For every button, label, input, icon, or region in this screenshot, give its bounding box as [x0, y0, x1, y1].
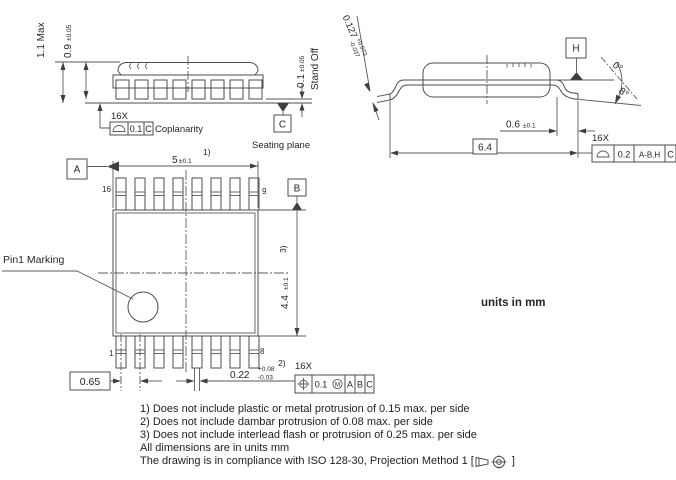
position-tolerance-frame: 0.1 M A B C — [295, 375, 374, 393]
dim-lead-thickness: 0.127 +0.073 -0.037 — [337, 14, 367, 61]
datum-letter: B — [294, 184, 301, 195]
footnotes: 1) Does not include plastic or metal pro… — [140, 403, 560, 469]
arrowhead — [390, 151, 398, 156]
dim-text: 0° — [610, 60, 624, 75]
dim-tol-plus: +0.08 — [258, 366, 275, 373]
pin — [230, 178, 240, 210]
pin — [154, 178, 164, 210]
pin1-marking-circle — [128, 292, 158, 322]
datum-letter: C — [279, 120, 286, 131]
compliance-text: The drawing is in compliance with ISO 12… — [140, 455, 474, 468]
dim-text: 6.4 — [478, 143, 492, 154]
arrowhead — [300, 103, 305, 111]
pin-number-1: 1 — [109, 349, 114, 358]
arrowhead — [61, 62, 66, 70]
lead-count-label: 16X — [295, 361, 313, 372]
dim-text: 0.9 — [63, 44, 74, 58]
dim-text: 0.22 — [230, 370, 250, 381]
bottom-pin-row — [116, 336, 259, 368]
coplanarity-frame: 0.1 C — [110, 122, 153, 135]
seating-plane-label: Seating plane — [252, 140, 310, 151]
pin-number-8: 8 — [260, 347, 265, 356]
pin — [192, 336, 202, 368]
side-view: 1.1 Max 0.9 ±0.05 0.1 ±0.05 Stand Off 16… — [36, 22, 321, 151]
dim-tol-minus: -0.03 — [258, 375, 273, 382]
angle-min-label: 0° — [610, 60, 624, 75]
footnote-units: All dimensions are in units mm — [140, 442, 560, 455]
dim-tol: ±0.05 — [299, 55, 306, 72]
tolerance-value: 0.1 — [130, 124, 143, 134]
lead — [230, 80, 243, 99]
package-drawing-page: 1.1 Max 0.9 ±0.05 0.1 ±0.05 Stand Off 16… — [0, 0, 676, 480]
dim-tol: ±0.1 — [179, 158, 192, 165]
position-tolerance-icon — [298, 378, 310, 390]
arrowhead — [84, 62, 89, 70]
pin — [116, 178, 126, 210]
arrowhead — [549, 129, 557, 134]
datum-triangle — [277, 103, 289, 112]
footnote-compliance: The drawing is in compliance with ISO 12… — [140, 455, 560, 469]
footnote-2: 2) Does not include dambar protrusion of… — [140, 416, 560, 429]
dim-text: 4.4 — [280, 295, 291, 309]
datum-refs: A-B,H — [639, 151, 661, 160]
profile-surface-icon — [597, 151, 609, 157]
lead — [154, 80, 167, 99]
compliance-text-close: ] — [512, 455, 515, 468]
pin-number-9: 9 — [262, 187, 267, 196]
mold-marks — [130, 64, 148, 70]
top-pin-row — [116, 178, 259, 210]
dim-text: 0.65 — [80, 376, 101, 388]
pin — [230, 336, 240, 368]
dim-text: 0.6 — [506, 120, 520, 131]
pin — [249, 336, 259, 368]
tolerance-value: 0.1 — [315, 380, 328, 390]
side-view-leads — [116, 80, 262, 99]
mmc-modifier-icon: M — [333, 379, 342, 388]
dim-text: 5 — [172, 155, 178, 166]
note-ref: 3) — [278, 245, 288, 253]
pin — [211, 336, 221, 368]
datum-ref: C — [145, 124, 152, 134]
dim-tol: ±0.05 — [66, 24, 73, 41]
units-note: units in mm — [481, 297, 546, 309]
extension-line — [377, 100, 390, 103]
datum-letter: A — [74, 165, 81, 176]
tolerance-value: 0.2 — [618, 150, 631, 160]
datum-ref: A — [347, 380, 353, 390]
lead-count-label: 16X — [111, 111, 129, 122]
footnote-1: 1) Does not include plastic or metal pro… — [140, 403, 560, 416]
pin-number-16: 16 — [102, 185, 111, 194]
profile-tolerance-frame: 0.2 A-B,H C — [592, 145, 676, 162]
dim-tol: ±0.1 — [523, 123, 536, 130]
arrowhead — [200, 379, 208, 384]
arrowhead — [98, 103, 103, 111]
dim-body-thickness: 0.9 ±0.05 — [63, 24, 74, 58]
dim-standoff: 0.1 ±0.05 — [296, 55, 307, 88]
foot-angle-reference — [578, 99, 641, 105]
end-view: 0.127 +0.073 -0.037 H 0° 8° 0.6 ±0.1 — [337, 14, 676, 162]
arrowhead — [373, 102, 379, 112]
datum-ref: C — [667, 150, 674, 160]
arrowhead — [187, 379, 195, 384]
pin — [211, 178, 221, 210]
standoff-label: Stand Off — [310, 48, 321, 90]
modifier-letter: M — [335, 382, 340, 389]
top-view: 16 9 1 8 Pin1 Marking 5 ±0.1 1) A B 4.4 … — [2, 147, 374, 393]
dim-text: 0.1 — [296, 74, 307, 88]
pin — [173, 336, 183, 368]
arrowhead — [578, 129, 586, 134]
dim-text: 0.127 — [340, 14, 359, 40]
leader-line — [100, 111, 110, 128]
pin — [249, 178, 259, 210]
dim-text: 1.1 Max — [36, 22, 47, 58]
lead — [211, 80, 224, 99]
footnote-3: 3) Does not include interlead flash or p… — [140, 429, 560, 442]
coplanarity-label: Coplanarity — [155, 124, 203, 135]
datum-triangle — [570, 72, 583, 80]
arrowhead — [113, 379, 121, 384]
datum-ref: B — [357, 380, 363, 390]
lead — [249, 80, 262, 99]
note-ref: 1) — [203, 147, 211, 157]
extension-line — [377, 94, 390, 97]
arrowhead — [250, 164, 258, 169]
arrowhead — [570, 151, 578, 156]
first-angle-projection-icon — [475, 455, 511, 469]
pin — [173, 178, 183, 210]
datum-triangle — [292, 202, 302, 210]
arrowhead — [140, 379, 148, 384]
arrowhead — [300, 92, 305, 100]
pin — [135, 178, 145, 210]
label-text: Stand Off — [310, 48, 321, 90]
note-ref: 2) — [278, 358, 286, 368]
arrowhead — [84, 91, 89, 99]
dim-body-length: 4.4 ±0.1 3) — [278, 245, 291, 309]
lead-count-label: 16X — [592, 133, 610, 144]
pin — [192, 178, 202, 210]
datum-letter: H — [572, 44, 579, 55]
dim-tol: ±0.1 — [283, 277, 290, 290]
lead-bend — [556, 80, 578, 94]
lead — [116, 80, 129, 99]
pin1-marking-label: Pin1 Marking — [3, 254, 64, 266]
profile-surface-icon — [113, 126, 125, 132]
mold-marks — [507, 64, 531, 68]
arrowhead — [61, 95, 66, 103]
datum-ref: C — [366, 380, 373, 390]
lead — [173, 80, 186, 99]
dim-total-height: 1.1 Max — [36, 22, 47, 58]
pin — [154, 336, 164, 368]
lead — [135, 80, 148, 99]
lead — [192, 80, 205, 99]
arrowhead — [295, 328, 300, 336]
